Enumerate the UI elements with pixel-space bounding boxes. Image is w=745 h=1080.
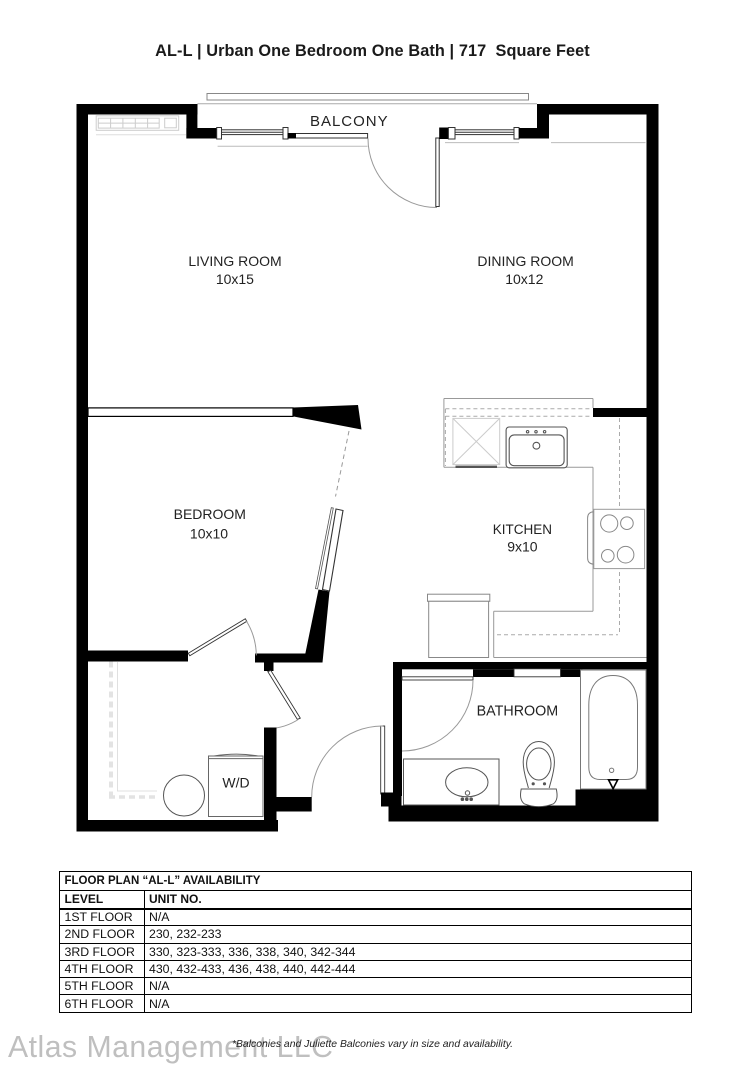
svg-text:10x15: 10x15 <box>216 271 254 287</box>
svg-text:BEDROOM: BEDROOM <box>174 506 246 522</box>
svg-text:W/D: W/D <box>222 775 249 791</box>
svg-text:KITCHEN: KITCHEN <box>493 522 552 537</box>
svg-text:10x12: 10x12 <box>505 271 543 287</box>
svg-text:BALCONY: BALCONY <box>310 113 389 130</box>
svg-text:LIVING ROOM: LIVING ROOM <box>188 253 281 269</box>
svg-text:DINING ROOM: DINING ROOM <box>477 253 573 269</box>
svg-text:BATHROOM: BATHROOM <box>477 704 559 720</box>
svg-text:10x10: 10x10 <box>190 526 228 542</box>
svg-text:9x10: 9x10 <box>507 539 538 555</box>
